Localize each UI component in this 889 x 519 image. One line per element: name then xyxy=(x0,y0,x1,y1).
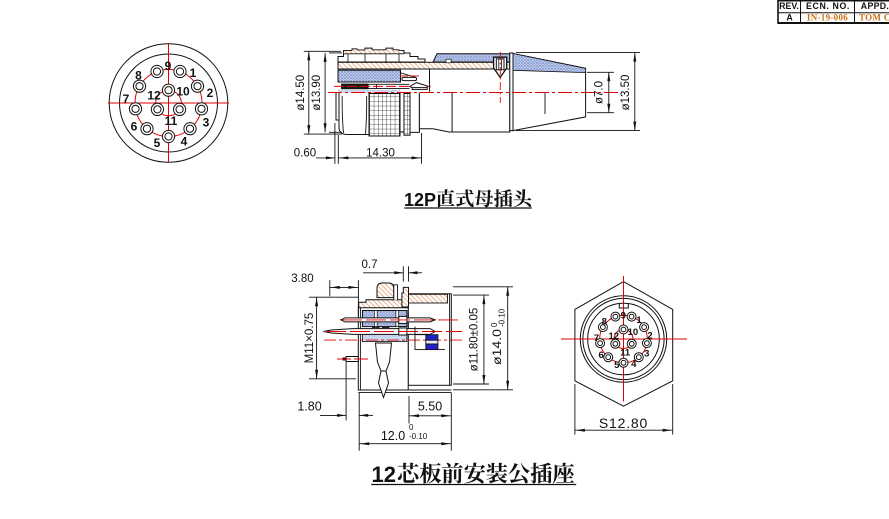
svg-text:5: 5 xyxy=(154,136,161,150)
svg-text:14.30: 14.30 xyxy=(366,147,395,159)
svg-text:3: 3 xyxy=(644,349,649,360)
svg-text:12P: 12P xyxy=(404,190,436,210)
svg-text:8: 8 xyxy=(602,316,607,327)
svg-text:12.0: 12.0 xyxy=(381,429,405,443)
svg-text:9: 9 xyxy=(621,310,626,321)
svg-text:APPD.: APPD. xyxy=(861,1,889,11)
svg-text:TOM CHEN: TOM CHEN xyxy=(859,13,889,23)
svg-text:ECN. NO.: ECN. NO. xyxy=(806,1,850,11)
svg-text:1: 1 xyxy=(190,66,197,80)
svg-text:8: 8 xyxy=(135,69,142,83)
svg-text:1.80: 1.80 xyxy=(297,400,321,414)
svg-text:ø13.50: ø13.50 xyxy=(620,75,632,111)
svg-text:6: 6 xyxy=(599,350,604,361)
svg-text:0: 0 xyxy=(409,423,414,432)
svg-text:7: 7 xyxy=(594,333,599,344)
svg-text:12: 12 xyxy=(609,331,620,342)
svg-text:1: 1 xyxy=(636,315,642,326)
svg-text:A: A xyxy=(786,13,793,23)
svg-text:3: 3 xyxy=(203,116,210,130)
svg-text:ø13.90: ø13.90 xyxy=(311,75,323,111)
svg-text:S12.80: S12.80 xyxy=(599,415,648,431)
svg-text:REV.: REV. xyxy=(779,1,799,11)
svg-text:IN-19-006: IN-19-006 xyxy=(807,13,848,23)
svg-text:5.50: 5.50 xyxy=(418,400,442,414)
svg-text:ø7.0: ø7.0 xyxy=(594,81,606,104)
svg-text:ø14.50: ø14.50 xyxy=(295,75,307,111)
svg-text:6: 6 xyxy=(131,120,138,134)
svg-text:2: 2 xyxy=(647,331,652,342)
svg-text:3.80: 3.80 xyxy=(291,273,313,285)
svg-text:4: 4 xyxy=(631,359,637,370)
svg-text:-0.10: -0.10 xyxy=(498,308,507,327)
svg-text:7: 7 xyxy=(123,92,130,106)
svg-text:10: 10 xyxy=(176,85,190,99)
svg-text:10: 10 xyxy=(628,327,639,338)
svg-text:ø14.0: ø14.0 xyxy=(490,329,504,365)
svg-text:M11×0.75: M11×0.75 xyxy=(304,313,316,364)
svg-text:11: 11 xyxy=(165,114,178,128)
svg-text:0.60: 0.60 xyxy=(294,147,316,159)
svg-text:2: 2 xyxy=(207,86,214,100)
svg-text:-0.10: -0.10 xyxy=(409,432,428,441)
svg-text:5: 5 xyxy=(614,360,620,371)
svg-text:11: 11 xyxy=(620,348,631,359)
svg-text:12: 12 xyxy=(372,462,396,487)
svg-text:ø11.80±0.05: ø11.80±0.05 xyxy=(469,308,481,372)
svg-text:12: 12 xyxy=(147,89,161,103)
svg-text:4: 4 xyxy=(181,135,188,149)
svg-text:0.7: 0.7 xyxy=(362,259,378,271)
svg-text:9: 9 xyxy=(165,59,172,73)
